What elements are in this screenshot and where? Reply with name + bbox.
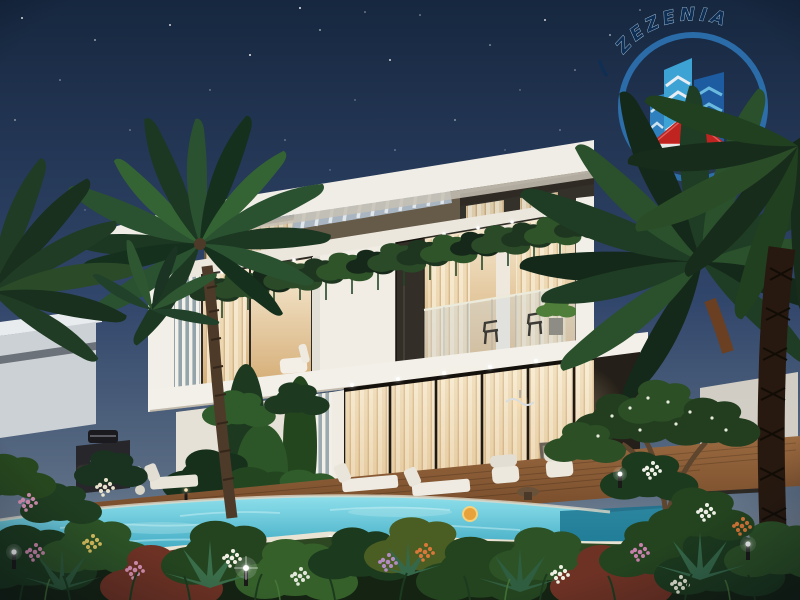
vignette-overlay bbox=[0, 0, 800, 600]
night-villa-render: ZEZENIA bbox=[0, 0, 800, 600]
scene-canvas: ZEZENIA bbox=[0, 0, 800, 600]
